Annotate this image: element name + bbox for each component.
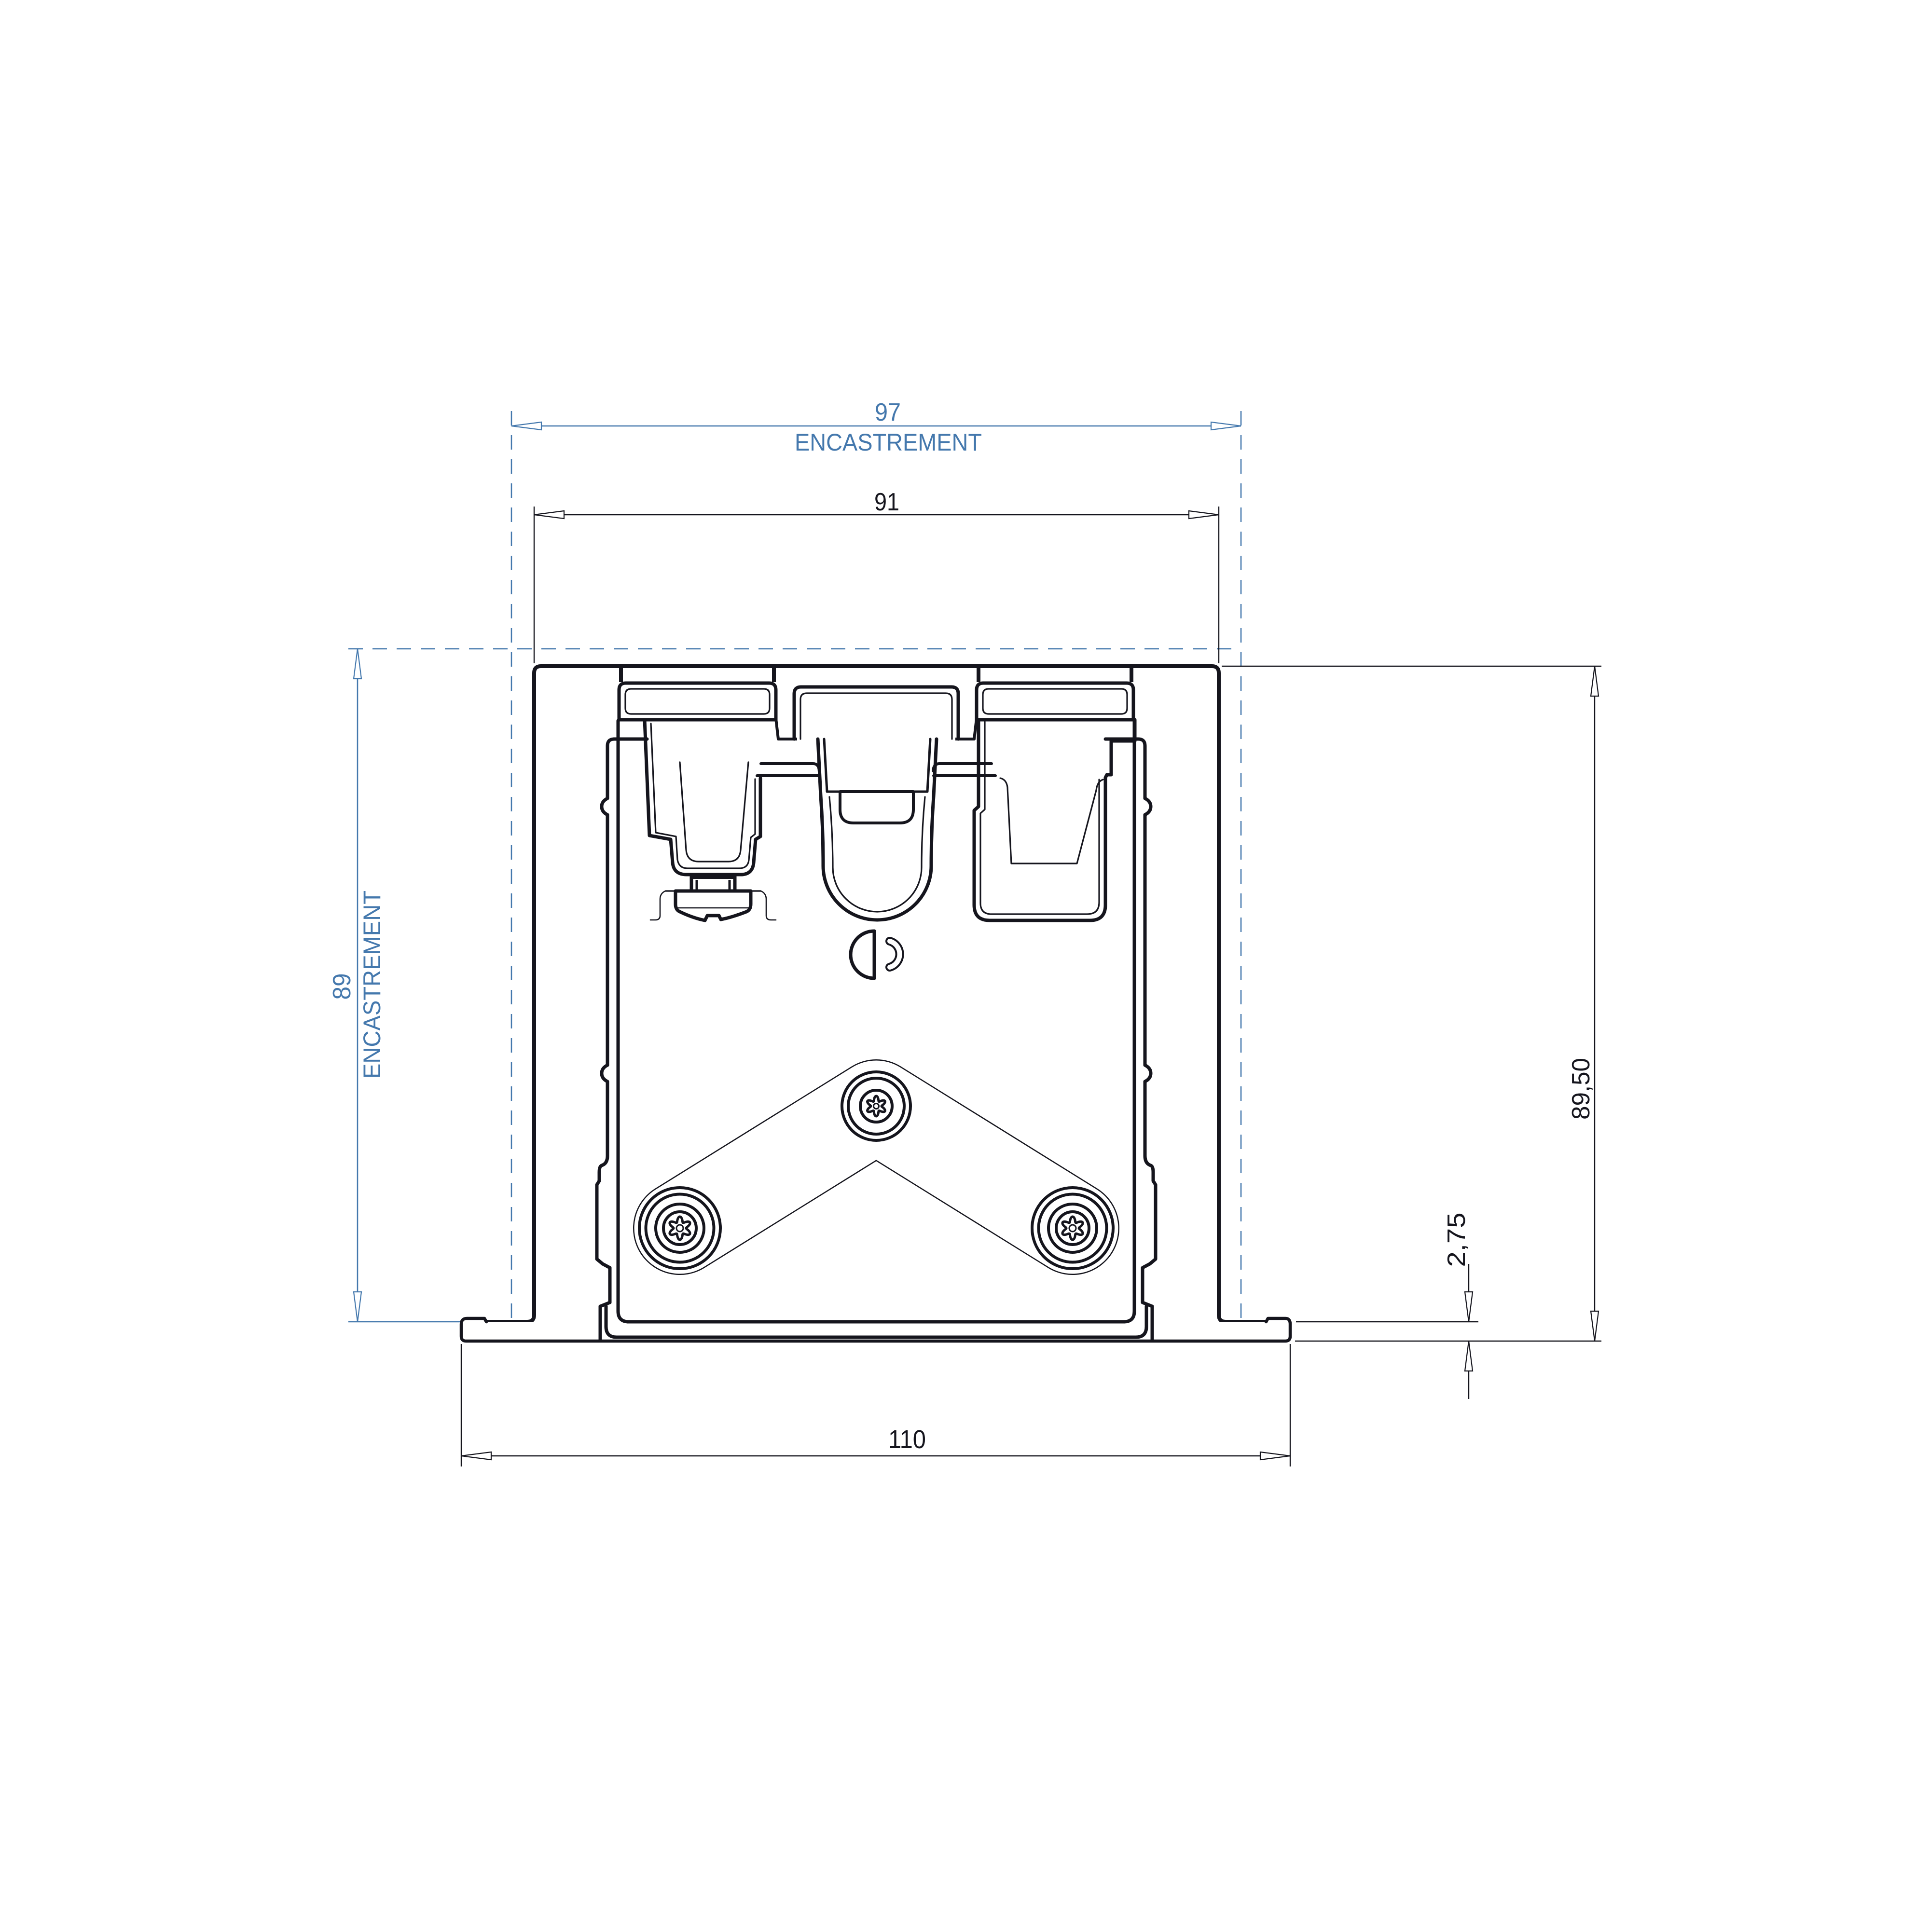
svg-text:89: 89	[328, 973, 356, 1000]
svg-text:ENCASTREMENT: ENCASTREMENT	[358, 891, 386, 1079]
svg-text:2,75: 2,75	[1443, 1213, 1471, 1267]
svg-text:97: 97	[875, 398, 901, 426]
svg-text:110: 110	[888, 1425, 926, 1454]
svg-text:89,50: 89,50	[1567, 1058, 1595, 1120]
svg-text:ENCASTREMENT: ENCASTREMENT	[795, 429, 982, 456]
svg-text:91: 91	[874, 488, 899, 516]
